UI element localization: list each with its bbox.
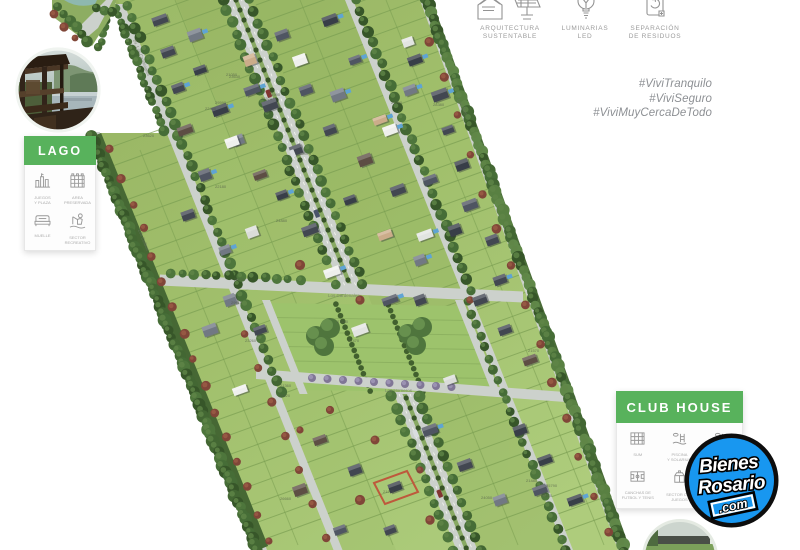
svg-text:24050: 24050 <box>481 495 493 500</box>
svg-text:22460: 22460 <box>205 106 217 111</box>
svg-text:24880: 24880 <box>276 218 288 223</box>
svg-text:22180: 22180 <box>215 184 227 189</box>
svg-text:29590: 29590 <box>215 100 227 105</box>
svg-text:Los Cardenales: Los Cardenales <box>328 293 360 298</box>
svg-text:21220: 21220 <box>383 489 395 494</box>
svg-text:25790: 25790 <box>546 483 558 488</box>
svg-text:24470: 24470 <box>348 338 360 343</box>
svg-text:Los Horneros: Los Horneros <box>385 388 413 393</box>
svg-text:21570: 21570 <box>528 348 540 353</box>
svg-text:25620: 25620 <box>279 393 291 398</box>
svg-text:29910: 29910 <box>231 300 243 305</box>
svg-text:26660: 26660 <box>280 496 292 501</box>
svg-text:23260: 23260 <box>245 338 257 343</box>
svg-text:28570: 28570 <box>300 151 312 156</box>
svg-text:21480: 21480 <box>526 478 538 483</box>
svg-text:21360: 21360 <box>280 383 292 388</box>
svg-text:29700: 29700 <box>234 277 246 282</box>
svg-text:23520: 23520 <box>261 96 273 101</box>
svg-text:23630: 23630 <box>229 74 241 79</box>
svg-text:28670: 28670 <box>541 493 553 498</box>
svg-text:23620: 23620 <box>143 133 155 138</box>
svg-text:21790: 21790 <box>391 100 403 105</box>
svg-text:27680: 27680 <box>337 319 349 324</box>
